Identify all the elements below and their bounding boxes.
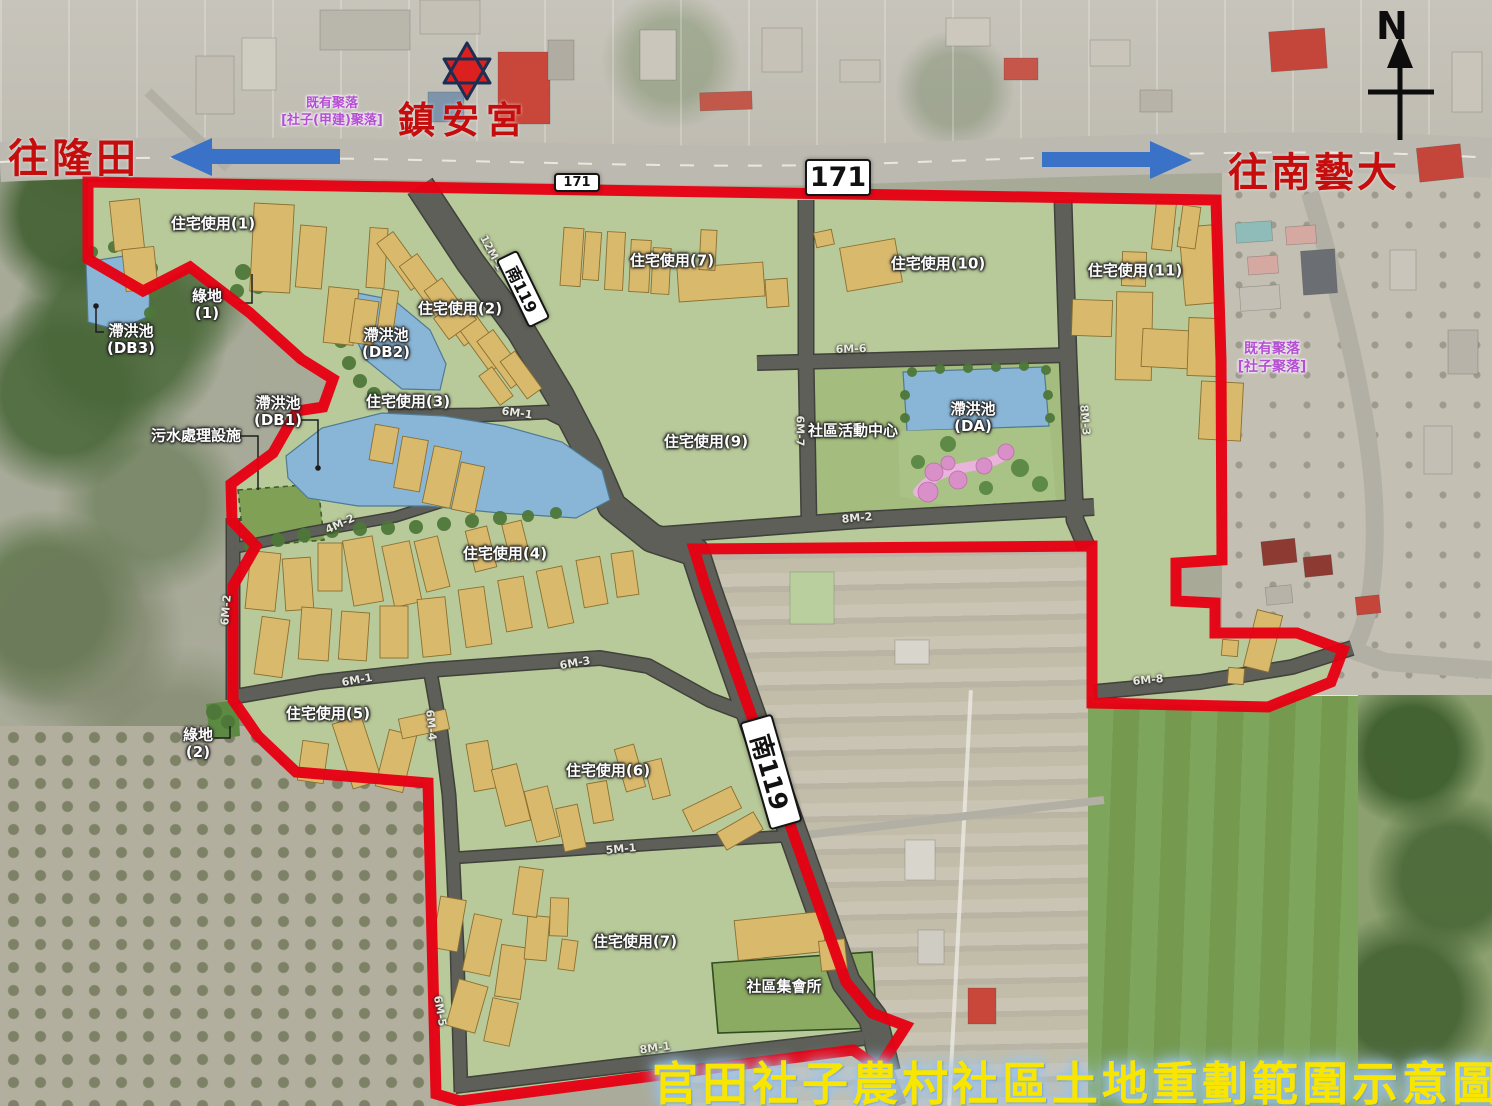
road-width-label: 6M-2 <box>218 594 234 626</box>
route-shield: 171 <box>805 159 871 196</box>
route-shield: 171 <box>554 173 600 192</box>
direction-nanyida: 往南藝大 <box>1228 140 1400 198</box>
zone-label: 滯洪池(DB2) <box>362 327 410 362</box>
temple-name: 鎮安宮 <box>398 90 530 144</box>
zone-label: 住宅使用(2) <box>418 300 502 317</box>
zone-label: 住宅使用(1) <box>171 215 255 232</box>
settlement-note-top-line2: [社子(甲建)聚落] <box>250 113 414 130</box>
zone-label: 綠地(2) <box>183 727 213 762</box>
zone-label: 污水處理設施 <box>151 427 241 444</box>
zone-label: 滯洪池(DB3) <box>107 323 155 358</box>
road-width-label: 6M-7 <box>794 416 807 447</box>
settlement-note-top: 既有聚落 [社子(甲建)聚落] <box>250 96 414 130</box>
settlement-note-right-line2: [社子聚落] <box>1202 358 1342 376</box>
zone-label: 住宅使用(9) <box>664 433 748 450</box>
zone-label: 滯洪池(DB1) <box>254 395 302 430</box>
zone-label: 綠地(1) <box>192 288 222 323</box>
settlement-note-right-line1: 既有聚落 <box>1202 340 1342 358</box>
zone-label: 住宅使用(11) <box>1088 262 1183 279</box>
zone-label: 滯洪池(DA) <box>950 401 995 436</box>
zone-label: 住宅使用(10) <box>891 255 986 272</box>
zone-label: 住宅使用(6) <box>566 762 650 779</box>
land-readjustment-map: 往隆田 往南藝大 鎮安宮 既有聚落 [社子(甲建)聚落] 既有聚落 [社子聚落]… <box>0 0 1492 1106</box>
zone-label: 社區集會所 <box>746 978 821 995</box>
road-width-label: 6M-6 <box>835 342 866 356</box>
road-width-label: 6M-4 <box>423 709 439 741</box>
zone-label: 住宅使用(3) <box>366 393 450 410</box>
road-width-label: 8M-2 <box>841 510 873 526</box>
direction-longtian: 往隆田 <box>8 126 140 184</box>
zone-label: 住宅使用(5) <box>286 705 370 722</box>
settlement-note-right: 既有聚落 [社子聚落] <box>1202 340 1342 376</box>
settlement-note-top-line1: 既有聚落 <box>250 96 414 113</box>
map-title: 官田社子農村社區土地重劃範圍示意圖 <box>652 1048 1492 1106</box>
park-garden <box>898 427 1056 506</box>
compass-north-label: N <box>1376 4 1408 48</box>
compass-icon <box>1368 36 1434 140</box>
road-width-label: 5M-1 <box>605 841 637 857</box>
zone-label: 住宅使用(7) <box>593 933 677 950</box>
zone-label: 住宅使用(4) <box>463 545 547 562</box>
zone-label: 住宅使用(7) <box>630 252 714 269</box>
road-width-label: 8M-3 <box>1077 404 1093 436</box>
road-width-label: 6M-8 <box>1132 672 1164 688</box>
zone-label: 社區活動中心 <box>808 422 898 439</box>
